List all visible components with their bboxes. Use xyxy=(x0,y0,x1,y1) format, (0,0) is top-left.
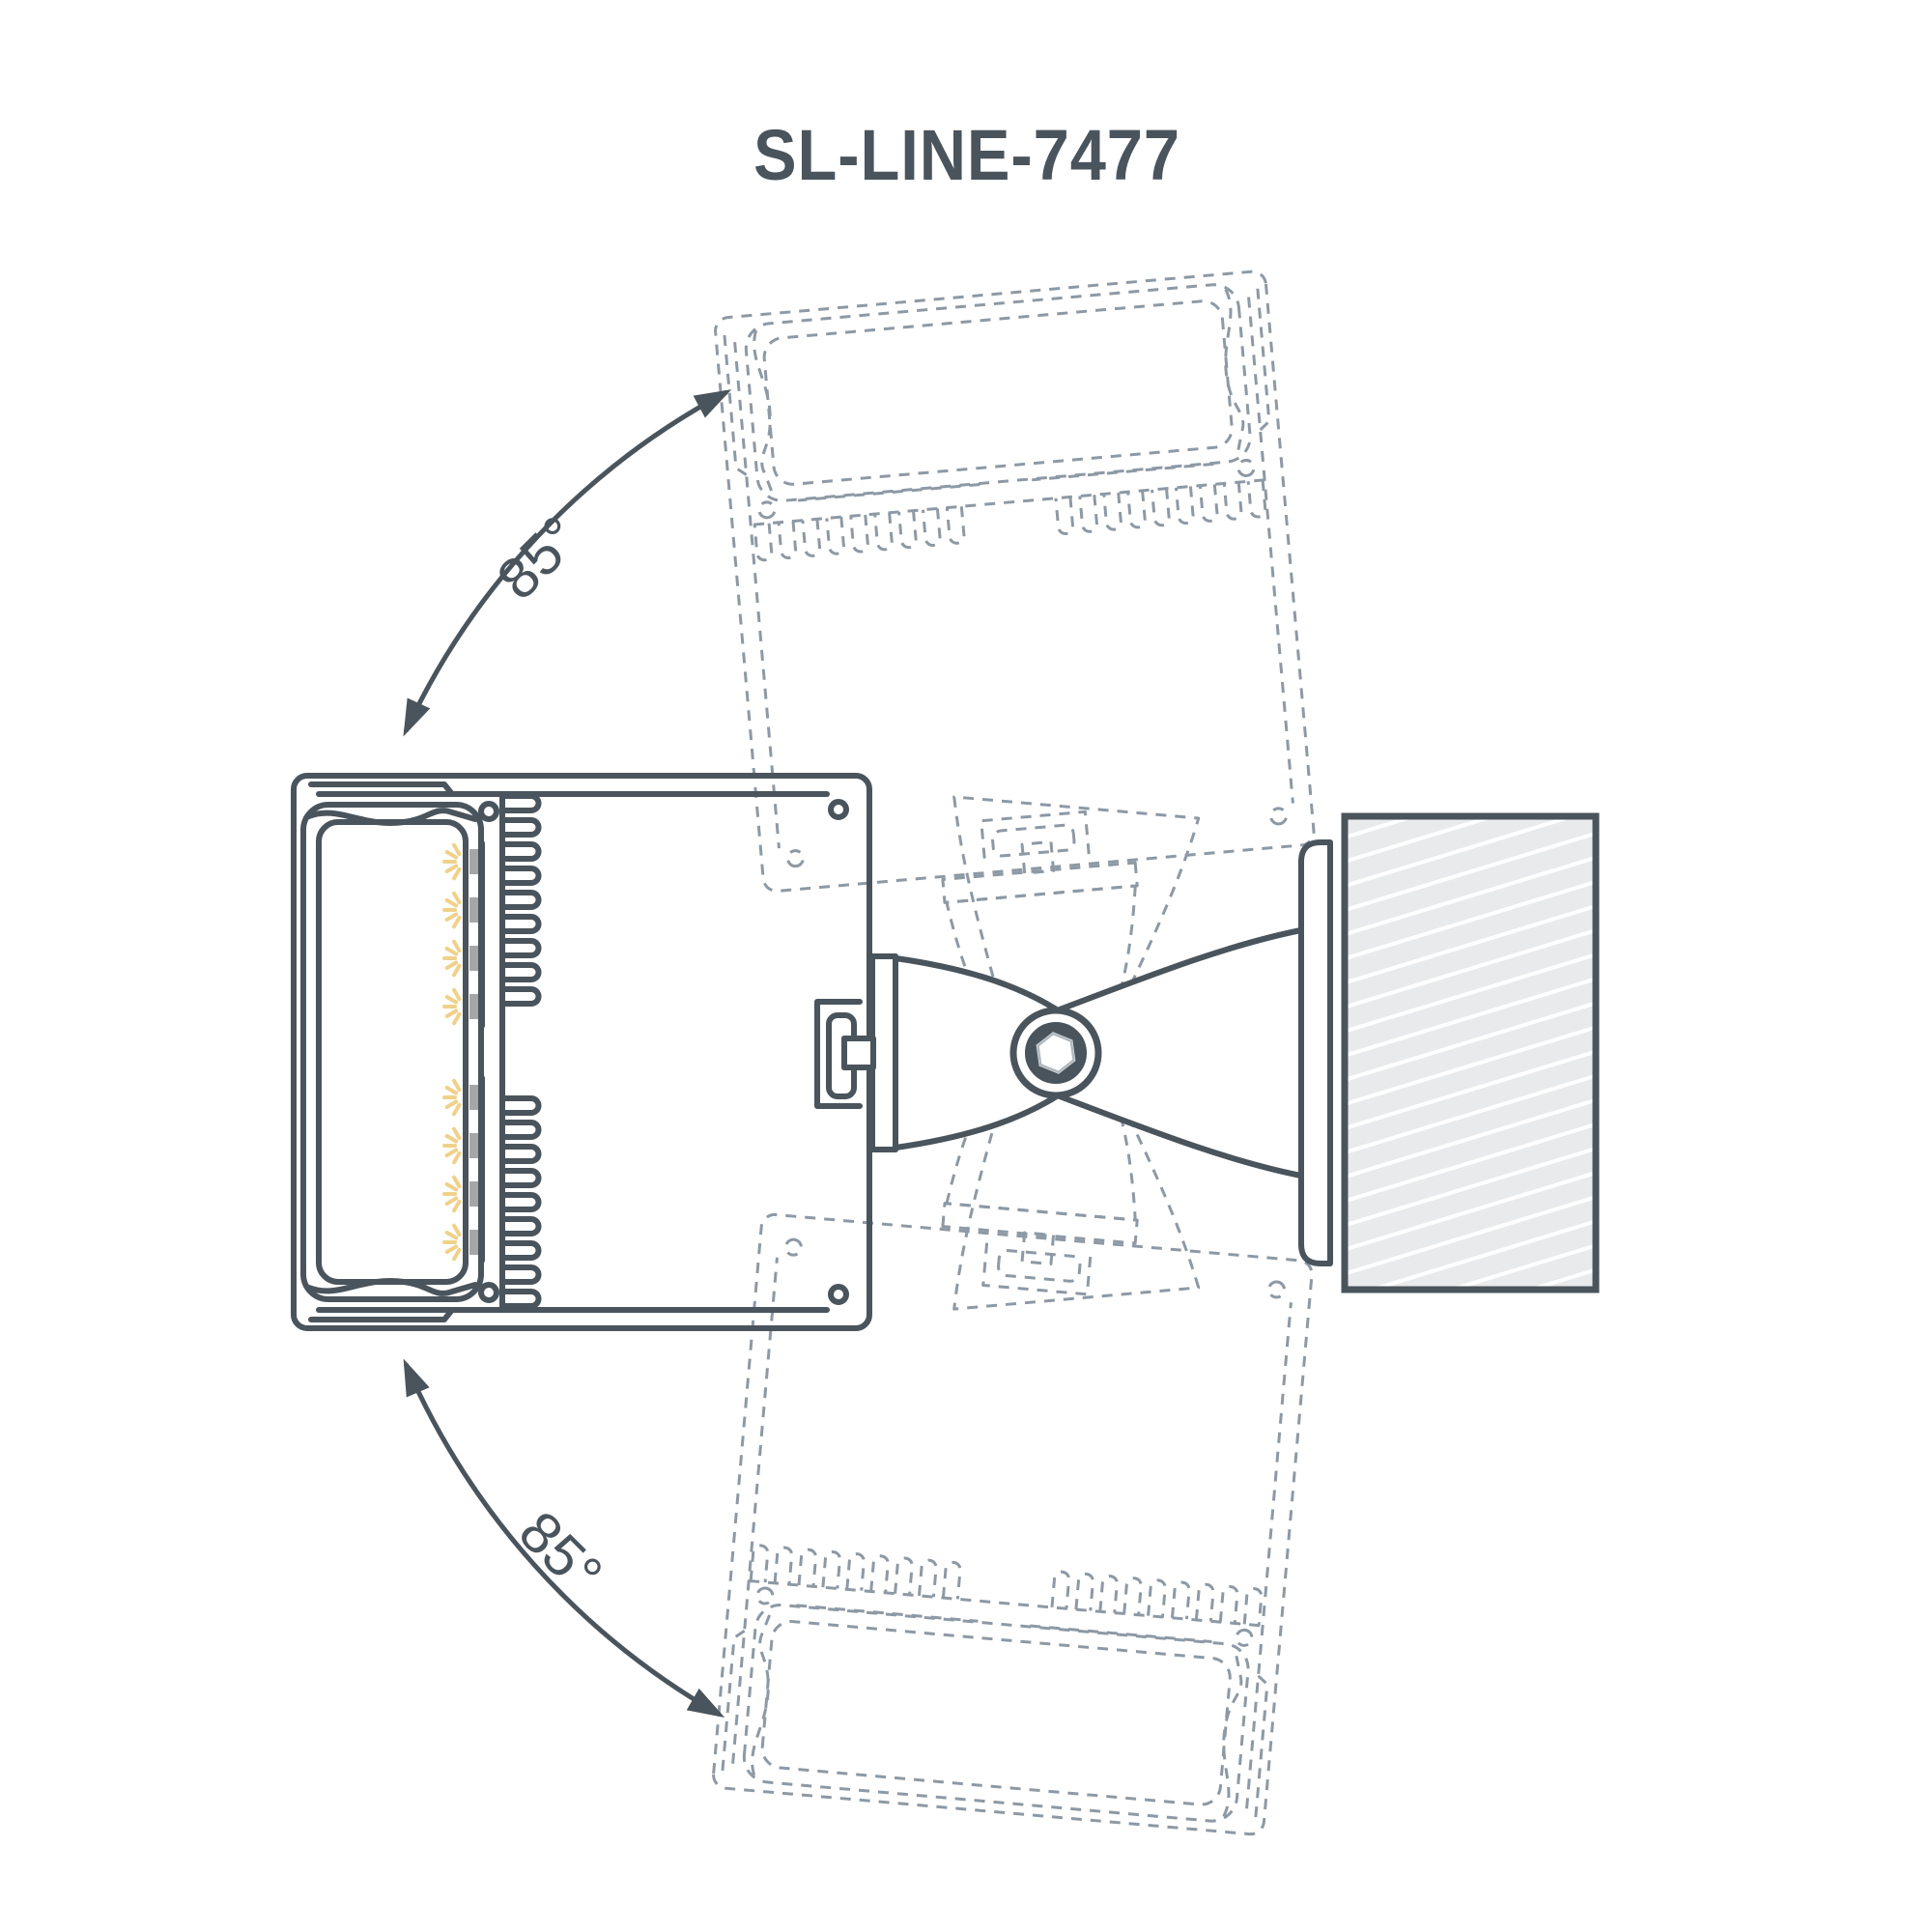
led-glow-ray-icon xyxy=(454,918,460,927)
led-glow-ray-icon xyxy=(454,1081,460,1091)
led-glow-ray-icon xyxy=(447,1199,457,1205)
led-glow-ray-icon xyxy=(454,1202,460,1211)
rotation-annotations: 85° 85° xyxy=(406,392,726,1715)
led-glow-ray-icon xyxy=(454,1226,460,1236)
technical-diagram: 85° 85° SL-LINE-7477 xyxy=(0,0,1932,1932)
mounting-assembly xyxy=(844,816,1596,1290)
led-glow-ray-icon xyxy=(454,845,460,855)
led-glow-ray-icon xyxy=(454,1178,460,1187)
led-glow-ray-icon xyxy=(454,966,460,976)
led-chip xyxy=(469,849,478,874)
led-glow-ray-icon xyxy=(447,949,457,954)
led-glow-ray-icon xyxy=(447,997,457,1003)
led-glow-ray-icon xyxy=(447,1102,457,1108)
product-title: SL-LINE-7477 xyxy=(753,115,1180,195)
led-glow-ray-icon xyxy=(447,852,457,858)
led-glow-ray-icon xyxy=(447,963,457,969)
led-glow-ray-icon xyxy=(447,1151,457,1156)
led-glow-ray-icon xyxy=(447,1184,457,1190)
led-glow-ray-icon xyxy=(447,1088,457,1094)
led-glow-ray-icon xyxy=(447,1233,457,1238)
led-chip xyxy=(469,1230,478,1255)
led-emitters xyxy=(444,845,478,1260)
led-glow-ray-icon xyxy=(454,894,460,903)
led-glow-ray-icon xyxy=(447,1247,457,1253)
led-chip xyxy=(469,994,478,1019)
led-glow-ray-icon xyxy=(447,1136,457,1142)
led-chip xyxy=(469,946,478,971)
led-glow-ray-icon xyxy=(454,1153,460,1163)
angle-label-up: 85° xyxy=(485,504,593,612)
latch-stem xyxy=(844,1038,873,1067)
led-glow-ray-icon xyxy=(454,869,460,879)
led-glow-ray-icon xyxy=(447,867,457,872)
led-glow-ray-icon xyxy=(454,1250,460,1260)
led-glow-ray-icon xyxy=(454,990,460,1000)
diagram-page: 85° 85° SL-LINE-7477 xyxy=(0,0,1932,1932)
wall-section xyxy=(1345,816,1596,1290)
led-glow-ray-icon xyxy=(454,1014,460,1024)
angle-label-down: 85° xyxy=(507,1499,615,1607)
bracket-flange xyxy=(1301,842,1330,1264)
led-chip xyxy=(469,897,478,923)
led-glow-ray-icon xyxy=(454,1105,460,1115)
led-glow-ray-icon xyxy=(454,942,460,952)
led-chip xyxy=(469,1085,478,1110)
led-glow-ray-icon xyxy=(454,1129,460,1139)
led-chip xyxy=(469,1181,478,1207)
led-glow-ray-icon xyxy=(447,1011,457,1017)
led-chip xyxy=(469,1133,478,1158)
led-glow-ray-icon xyxy=(447,915,457,921)
led-glow-ray-icon xyxy=(447,900,457,906)
